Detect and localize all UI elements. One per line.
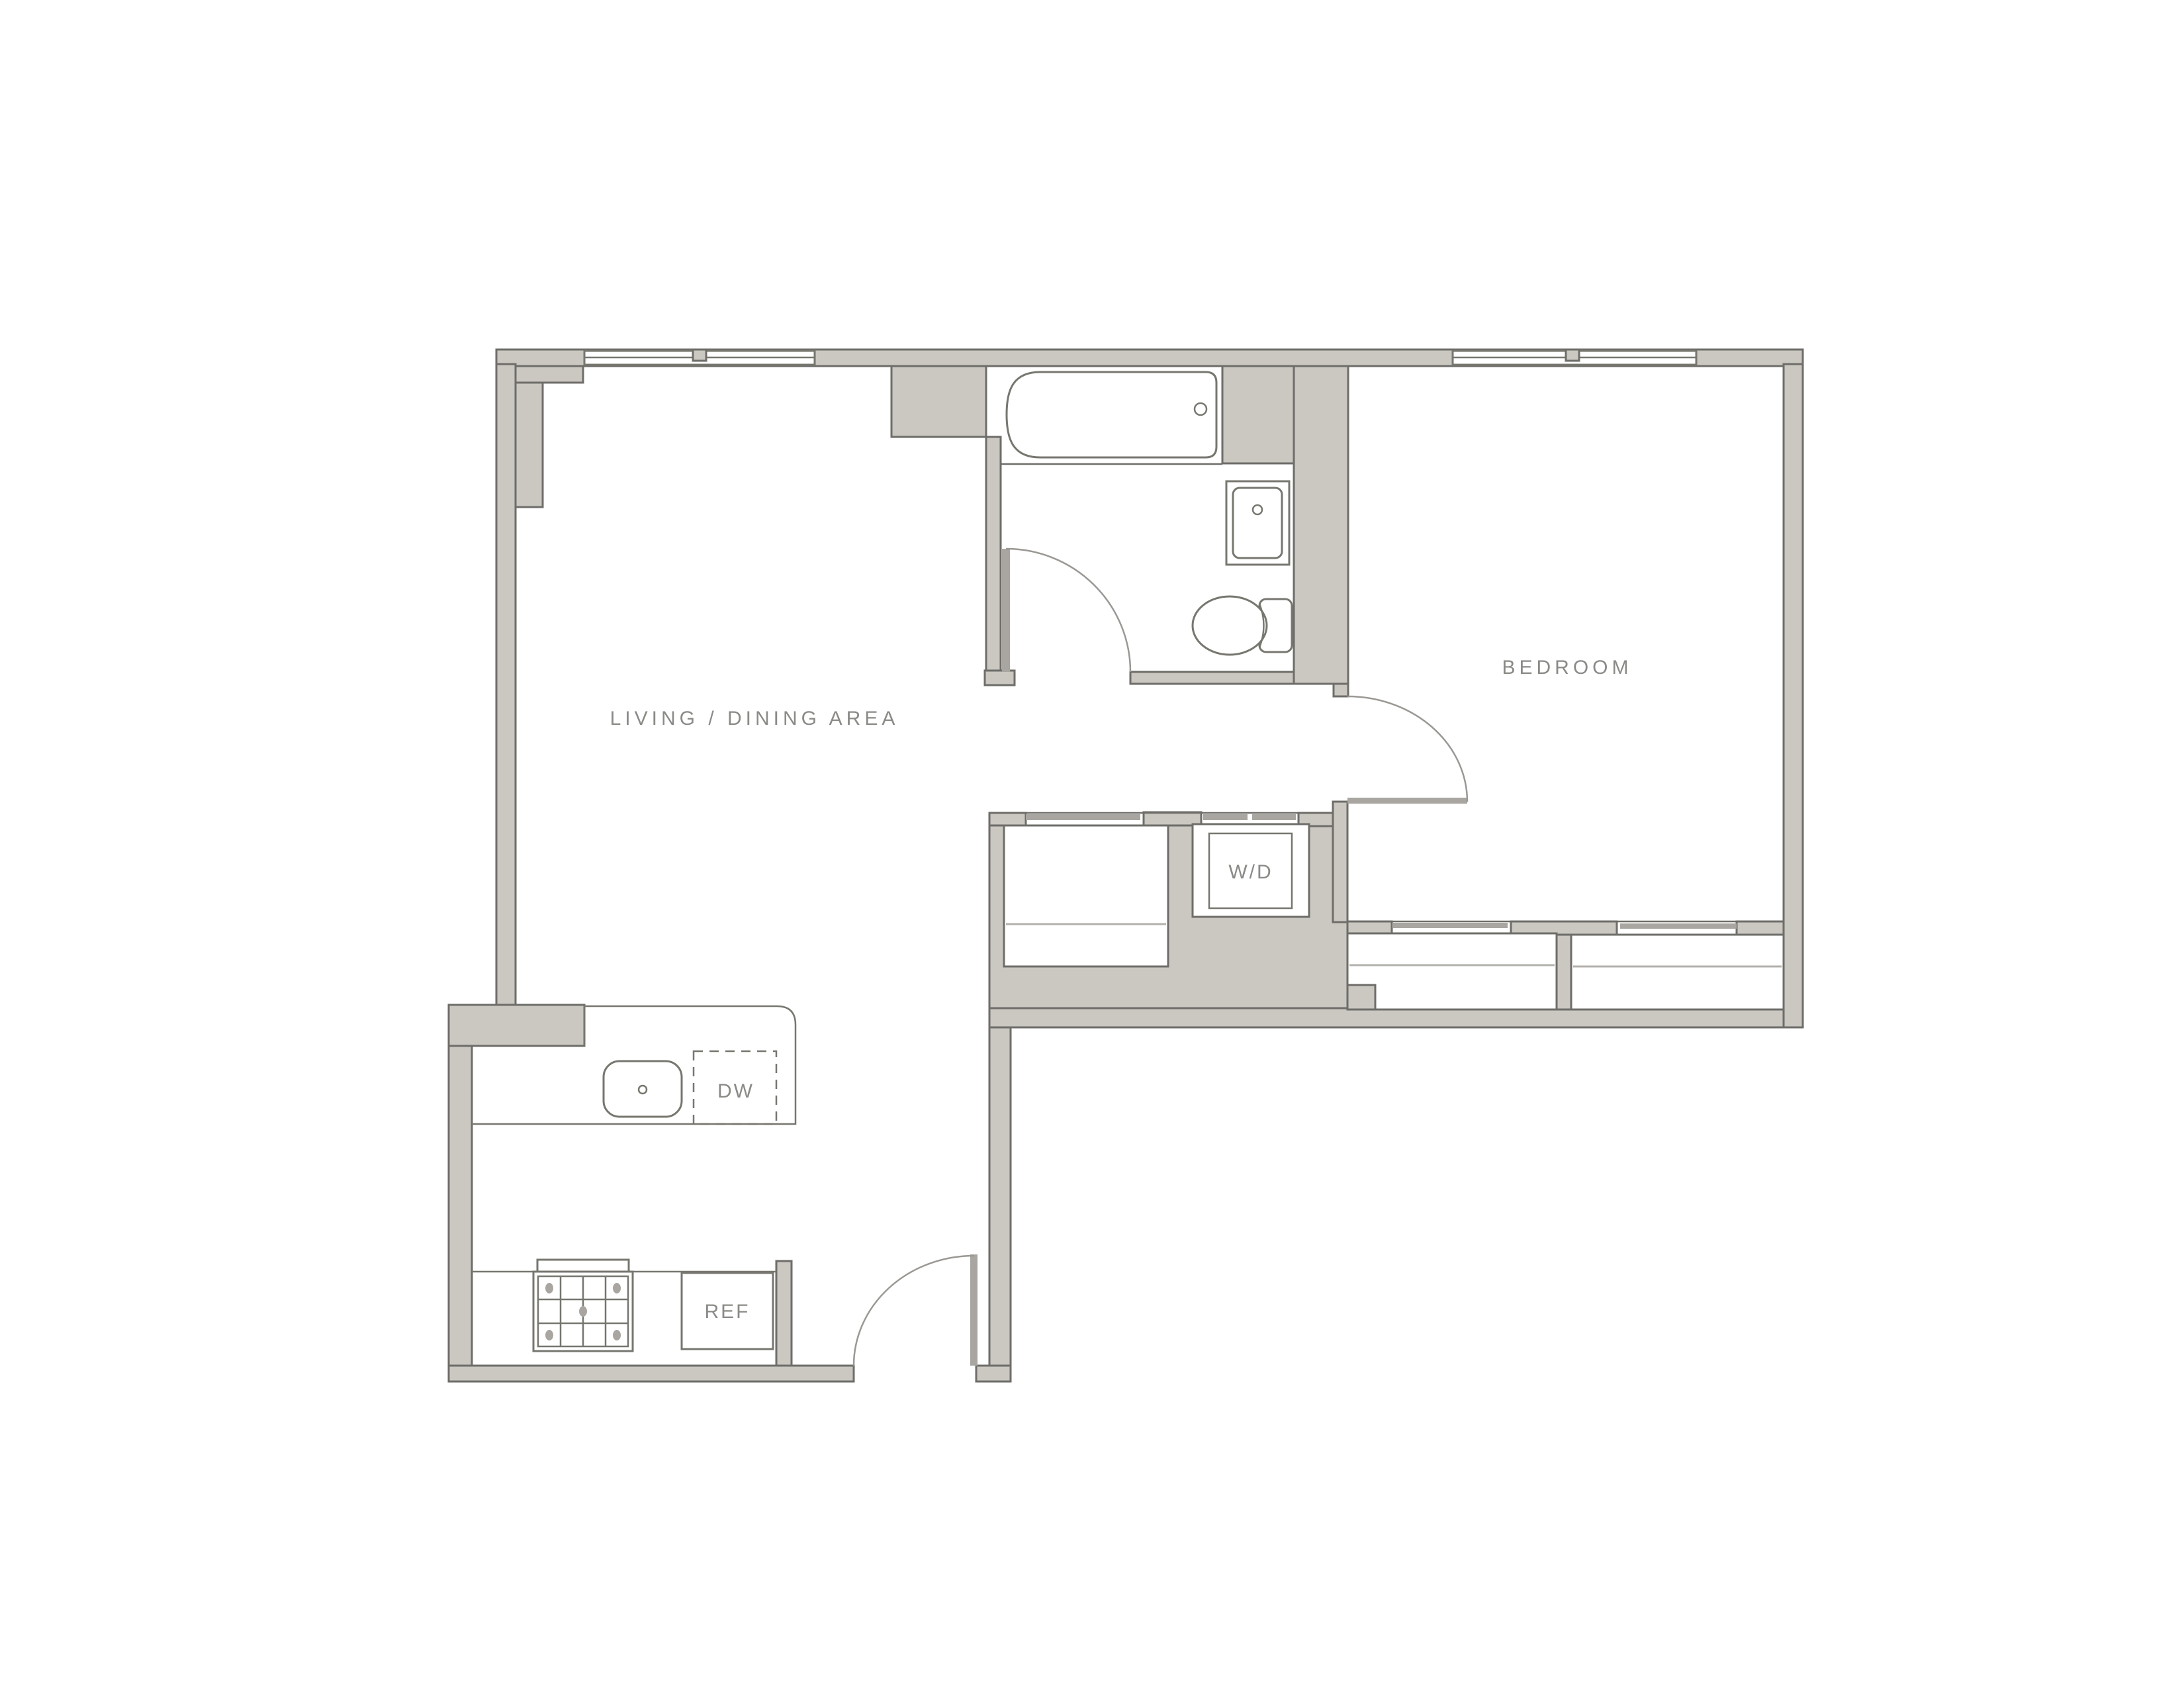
wall-left-pilaster bbox=[516, 383, 543, 507]
wall-kitchen-step-band bbox=[449, 1005, 584, 1046]
bedroom-closet-right bbox=[1571, 935, 1784, 1009]
label-living-dining: LIVING / DINING AREA bbox=[610, 708, 899, 729]
closet-left-door-bar bbox=[1393, 923, 1508, 928]
jamb-hall-closet-left bbox=[989, 813, 1026, 825]
hall-closet bbox=[1004, 825, 1168, 966]
bathtub bbox=[1007, 372, 1216, 457]
bedroom-door bbox=[1347, 696, 1467, 804]
floor-plan: LIVING / DINING AREA BEDROOM W/D DW REF bbox=[0, 0, 2184, 1688]
bathroom-door-swing bbox=[1006, 549, 1130, 672]
bedroom-closet-left bbox=[1347, 933, 1557, 1009]
wall-bottom-right-section bbox=[989, 1008, 1803, 1027]
bathroom-sink bbox=[1226, 481, 1289, 565]
wall-ref-stub bbox=[776, 1261, 792, 1366]
bathroom-door bbox=[1002, 549, 1130, 672]
wall-living-bathroom bbox=[986, 437, 1001, 672]
wall-left-kitchen bbox=[449, 1046, 472, 1382]
kitchen-fixtures bbox=[472, 1006, 796, 1351]
jamb-bedroom-closet-left bbox=[1347, 921, 1392, 933]
wall-bottom-kitchen bbox=[449, 1366, 854, 1382]
label-refrigerator: REF bbox=[705, 1301, 751, 1323]
bedroom-closet-left-notch bbox=[1347, 985, 1375, 1009]
wall-right-bedroom bbox=[1784, 364, 1803, 1027]
bathroom-door-leaf bbox=[1002, 549, 1010, 672]
living-window-mullion bbox=[693, 350, 706, 361]
hall-closet-door-bar bbox=[1026, 814, 1140, 820]
bedroom-door-leaf bbox=[1347, 798, 1467, 804]
closet-right-door-bar bbox=[1620, 923, 1737, 929]
wall-closet-divider bbox=[1557, 935, 1571, 1009]
bedroom-door-swing bbox=[1347, 696, 1467, 802]
wall-left-living bbox=[496, 364, 516, 1005]
wall-top-left-thick bbox=[516, 366, 583, 383]
entry-door-leaf bbox=[970, 1254, 978, 1366]
wall-end-cap bbox=[985, 671, 1015, 685]
label-dishwasher: DW bbox=[717, 1080, 754, 1102]
bedroom-window-mullion bbox=[1566, 350, 1579, 361]
kitchen-sink bbox=[604, 1061, 682, 1117]
wall-entry-corner bbox=[976, 1366, 1011, 1382]
entry-door bbox=[854, 1254, 978, 1366]
wall-bath-east-bedroom-west bbox=[1294, 366, 1348, 684]
living-window bbox=[584, 350, 815, 365]
jamb-bedroom-closet-right bbox=[1737, 921, 1784, 935]
wall-bedroom-doorjamb-foot bbox=[1334, 684, 1348, 696]
label-washer-dryer: W/D bbox=[1228, 861, 1273, 883]
bedroom-window bbox=[1453, 350, 1696, 365]
wall-bedroom-west-lower bbox=[1333, 802, 1347, 922]
floor-plan-canvas: LIVING / DINING AREA BEDROOM W/D DW REF bbox=[0, 0, 2184, 1688]
entry-door-swing bbox=[854, 1256, 974, 1366]
toilet bbox=[1193, 596, 1292, 655]
wall-living-top-chunk bbox=[891, 366, 986, 437]
wd-door-bar-right bbox=[1252, 814, 1296, 820]
wd-door-bar-left bbox=[1203, 814, 1248, 820]
range bbox=[533, 1260, 633, 1351]
label-bedroom: BEDROOM bbox=[1502, 657, 1632, 679]
wall-bathroom-south bbox=[1130, 672, 1294, 684]
